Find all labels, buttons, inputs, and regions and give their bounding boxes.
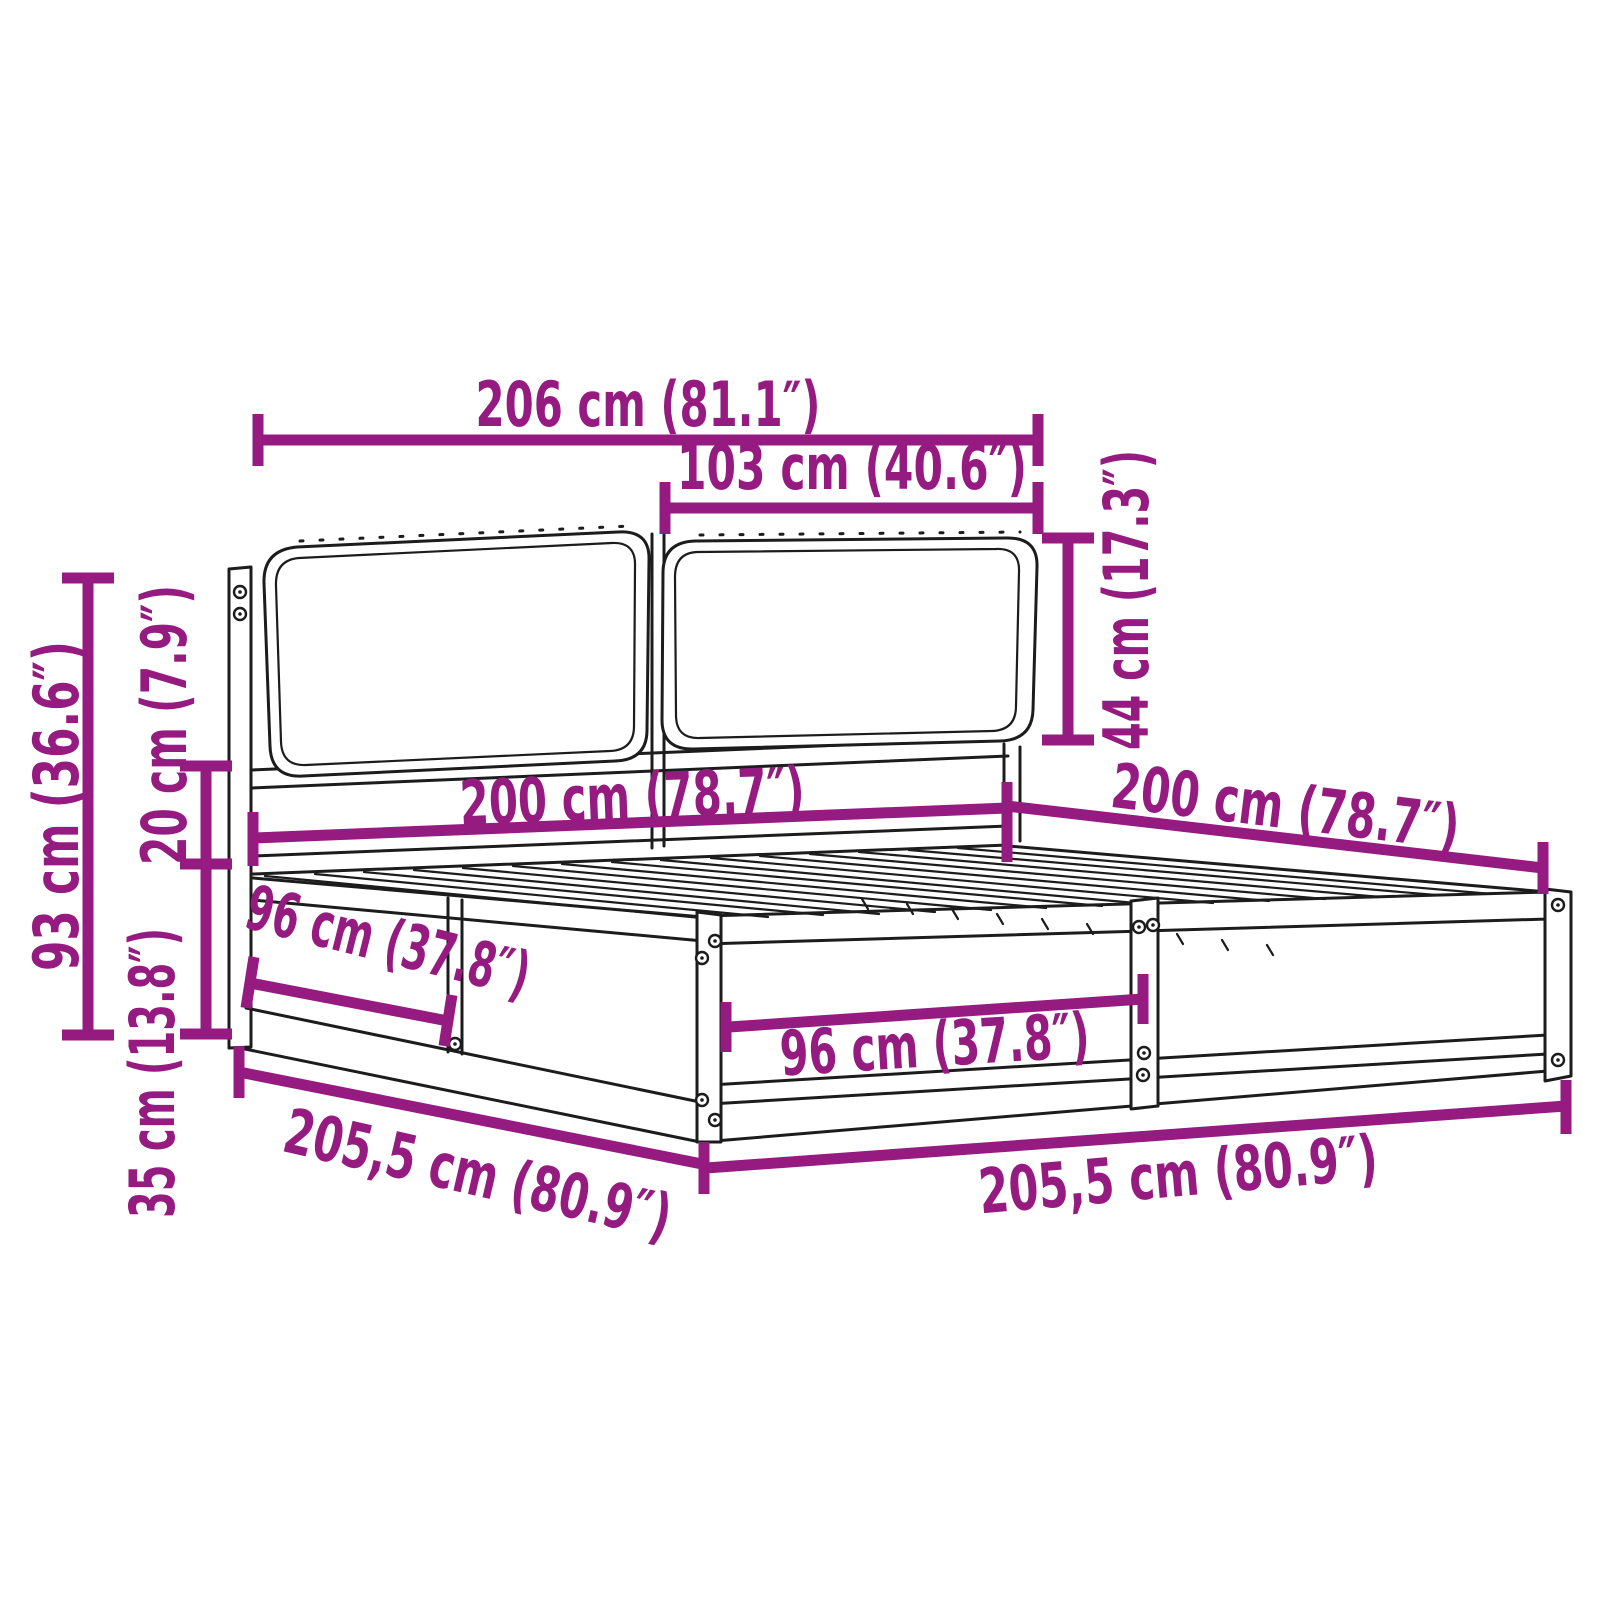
dim-cushion-width: 103 cm (40.6″) [665,431,1038,534]
diagram-canvas: 206 cm (81.1″) 103 cm (40.6″) 44 cm (17.… [0,0,1600,1600]
slat-support-marks [862,899,1273,955]
dim-inner-depth-label: 200 cm (78.7″) [1107,749,1463,864]
dim-headboard-height: 93 cm (36.6″) [20,578,114,1035]
dim-front-section-label: 96 cm (37.8″) [778,999,1092,1091]
dim-base-height-label: 35 cm (13.8″) [116,928,189,1218]
dim-outer-side: 205,5 cm (80.9″) [239,1046,704,1254]
dim-inner-width-label: 200 cm (78.7″) [458,753,806,840]
dim-gap-and-base: 20 cm (7.9″) 35 cm (13.8″) [116,585,232,1218]
dim-cushion-width-label: 103 cm (40.6″) [677,431,1027,504]
bed-dimension-diagram: 206 cm (81.1″) 103 cm (40.6″) 44 cm (17.… [0,0,1600,1600]
headboard-cushion-right [662,532,1037,749]
dim-platform-gap-label: 20 cm (7.9″) [128,585,201,865]
headboard-cushion-left [264,526,649,776]
dim-cushion-height-label: 44 cm (17.3″) [1090,450,1163,750]
dim-headboard-height-label: 93 cm (36.6″) [20,641,93,971]
dim-cushion-height: 44 cm (17.3″) [1042,450,1163,750]
dim-front-section: 96 cm (37.8″) [726,974,1143,1090]
